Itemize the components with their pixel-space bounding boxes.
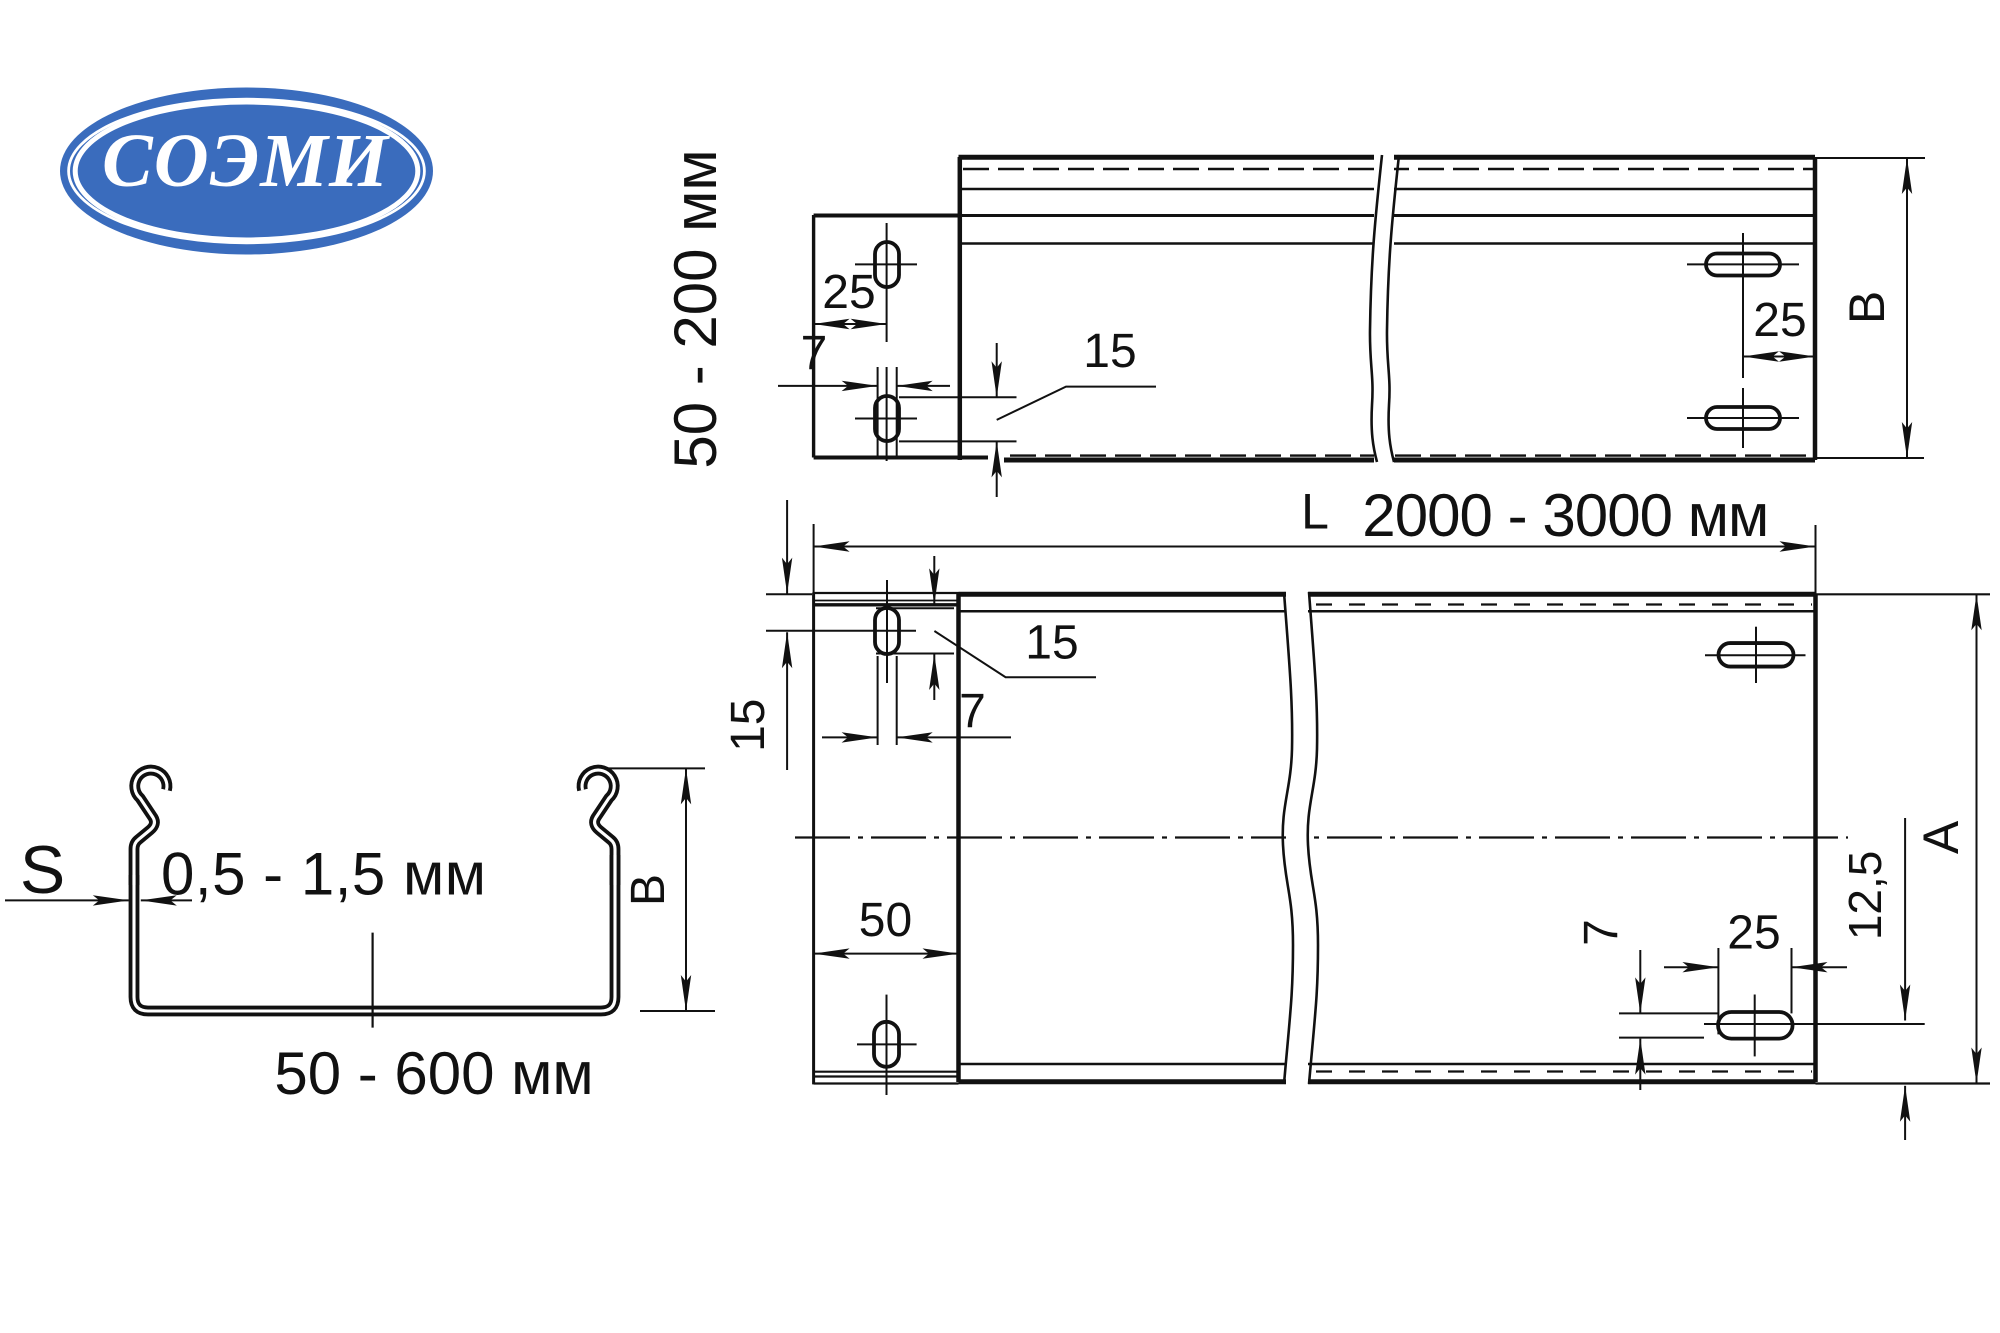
svg-text:15: 15	[722, 699, 775, 752]
svg-text:7: 7	[801, 327, 828, 380]
svg-text:L: L	[1301, 484, 1329, 540]
svg-text:7: 7	[959, 685, 986, 738]
svg-text:S: S	[20, 832, 65, 908]
svg-text:50 - 200 мм: 50 - 200 мм	[662, 149, 729, 468]
svg-text:25: 25	[1727, 906, 1780, 959]
svg-text:7: 7	[1575, 919, 1628, 946]
svg-text:2000 - 3000 мм: 2000 - 3000 мм	[1362, 482, 1769, 549]
svg-text:25: 25	[1753, 294, 1806, 347]
svg-text:A: A	[1913, 820, 1969, 854]
svg-text:15: 15	[1083, 325, 1136, 378]
svg-text:50: 50	[859, 894, 912, 947]
svg-text:15: 15	[1025, 616, 1078, 669]
svg-text:50 - 600 мм: 50 - 600 мм	[274, 1040, 593, 1107]
svg-text:B: B	[622, 874, 675, 906]
svg-text:0,5 - 1,5 мм: 0,5 - 1,5 мм	[161, 840, 486, 907]
svg-text:B: B	[1839, 291, 1895, 324]
svg-text:12,5: 12,5	[1839, 851, 1891, 941]
svg-text:25: 25	[822, 266, 875, 319]
svg-text:СОЭМИ: СОЭМИ	[102, 119, 391, 203]
